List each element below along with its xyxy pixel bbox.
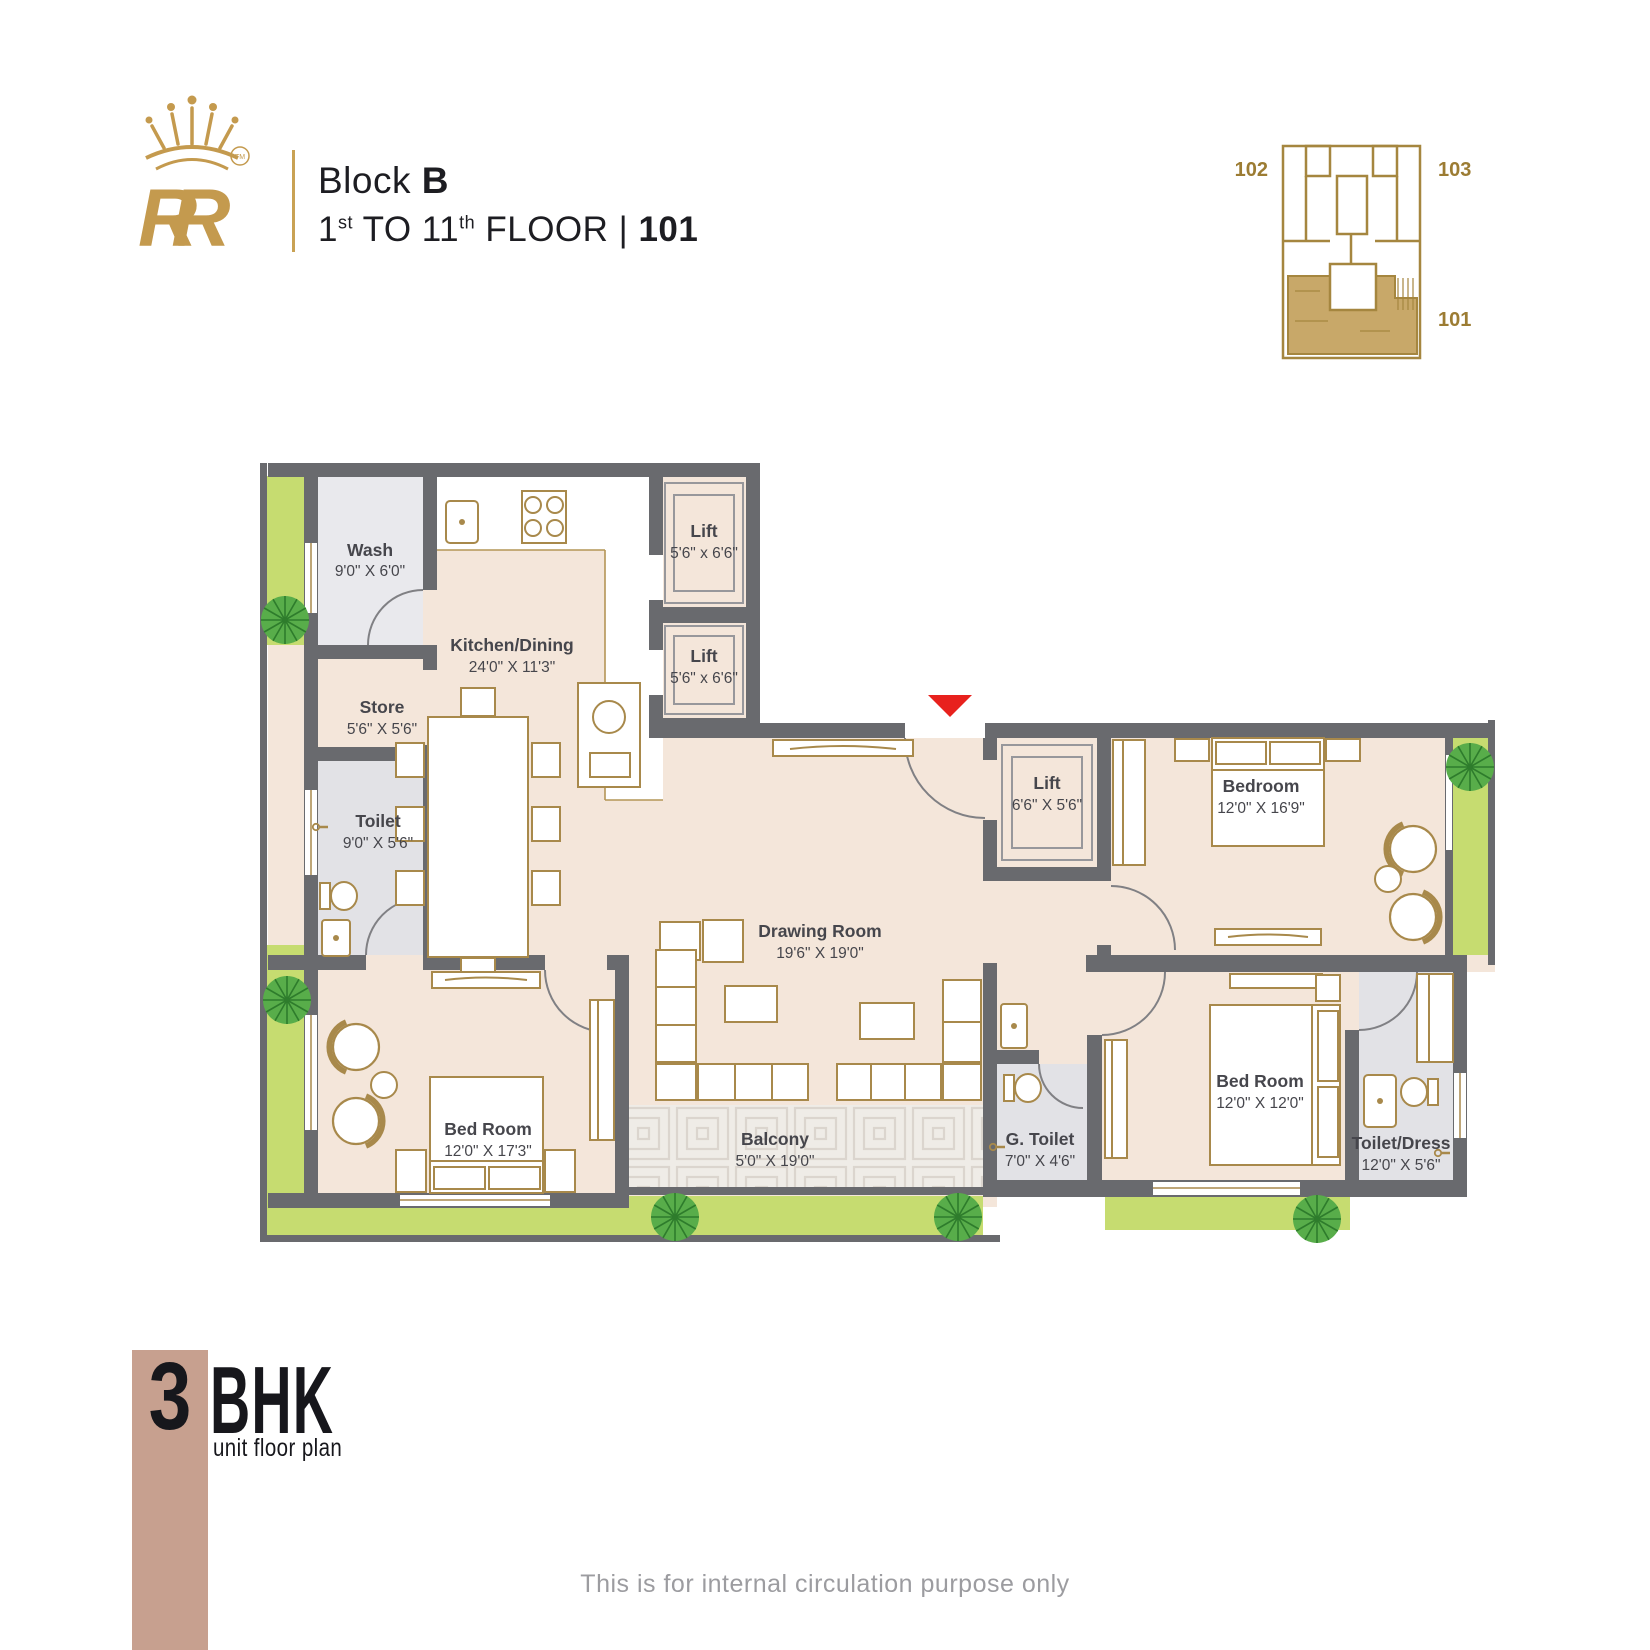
dining-table-icon (428, 717, 528, 957)
svg-text:Bed Room: Bed Room (444, 1119, 532, 1139)
wardrobe-icon (1417, 974, 1453, 1062)
tree-icon (1446, 743, 1494, 791)
footer-sub-label: unit floor plan (213, 1434, 342, 1463)
svg-text:Drawing Room: Drawing Room (758, 921, 881, 941)
wardrobe-icon (1113, 740, 1145, 865)
svg-text:Lift: Lift (690, 646, 717, 666)
svg-text:G. Toilet: G. Toilet (1006, 1129, 1075, 1149)
svg-text:Store: Store (360, 697, 405, 717)
floor-plan-page: { "header": { "logo_text": "RR", "logo_t… (0, 0, 1650, 1650)
svg-text:Bedroom: Bedroom (1223, 776, 1300, 796)
coffee-table-icon (860, 1003, 914, 1039)
floor-plan-drawing: Wash9'0" X 6'0" Kitchen/Dining24'0" X 11… (260, 455, 1500, 1255)
svg-text:12'0" X 5'6": 12'0" X 5'6" (1362, 1157, 1441, 1174)
coffee-table-icon (725, 986, 777, 1022)
svg-text:5'0" X 19'0": 5'0" X 19'0" (736, 1153, 815, 1170)
page-title: Block B 1st TO 11th FLOOR | 101 (318, 160, 698, 250)
key-plan-label-101: 101 (1438, 309, 1471, 331)
toilet-icon (320, 883, 330, 909)
svg-text:7'0" X 4'6": 7'0" X 4'6" (1005, 1153, 1075, 1170)
wash-floor (318, 477, 423, 645)
tree-icon (263, 976, 311, 1024)
sofa-icon (656, 950, 696, 1062)
svg-text:12'0" X 17'3": 12'0" X 17'3" (444, 1143, 532, 1160)
svg-text:Toilet: Toilet (355, 811, 401, 831)
svg-text:Wash: Wash (347, 540, 393, 560)
wardrobe-icon (1105, 1040, 1127, 1158)
footer-bhk-number: 3 (140, 1342, 201, 1452)
header-divider (292, 150, 295, 252)
disclaimer-text: This is for internal circulation purpose… (0, 1570, 1650, 1599)
svg-text:Balcony: Balcony (741, 1129, 809, 1149)
svg-text:24'0" X 11'3": 24'0" X 11'3" (469, 659, 555, 676)
wardrobe-icon (590, 1000, 614, 1140)
svg-text:19'6" X 19'0": 19'6" X 19'0" (776, 945, 864, 962)
floor-plan: Wash9'0" X 6'0" Kitchen/Dining24'0" X 11… (260, 455, 1500, 1255)
svg-text:6'6" X 5'6": 6'6" X 5'6" (1012, 797, 1082, 814)
svg-text:12'0" X 12'0": 12'0" X 12'0" (1216, 1095, 1304, 1112)
svg-text:5'6" X 5'6": 5'6" X 5'6" (347, 721, 417, 738)
key-plan-drawing: 102 103 101 (1210, 126, 1510, 376)
tree-icon (651, 1193, 699, 1241)
logo-letters: RR (138, 173, 230, 264)
toilet-icon (1428, 1079, 1438, 1105)
svg-text:Lift: Lift (690, 521, 717, 541)
sofa-icon (837, 1064, 941, 1100)
svg-text:12'0" X 16'9": 12'0" X 16'9" (1217, 800, 1305, 817)
key-plan-label-103: 103 (1438, 159, 1471, 181)
sofa-icon (698, 1064, 808, 1100)
svg-text:9'0" X 6'0": 9'0" X 6'0" (335, 563, 405, 580)
rr-crown-logo: RR TM (132, 86, 257, 266)
svg-text:Lift: Lift (1033, 773, 1060, 793)
tree-icon (1293, 1195, 1341, 1243)
key-plan: 102 103 101 (1210, 126, 1510, 376)
svg-text:9'0" X 5'6": 9'0" X 5'6" (343, 835, 413, 852)
logo-tm: TM (235, 154, 245, 161)
key-plan-label-102: 102 (1235, 159, 1268, 181)
entrance-marker-icon (928, 695, 972, 717)
svg-text:Toilet/Dress: Toilet/Dress (1352, 1133, 1451, 1153)
svg-text:Bed Room: Bed Room (1216, 1071, 1304, 1091)
floor-title: 1st TO 11th FLOOR | 101 (318, 210, 698, 250)
svg-text:5'6" x 6'6": 5'6" x 6'6" (670, 545, 738, 562)
tree-icon (934, 1193, 982, 1241)
block-title: Block B (318, 160, 698, 202)
toilet-icon (1004, 1075, 1014, 1101)
svg-text:5'6" x 6'6": 5'6" x 6'6" (670, 670, 738, 687)
rr-crown-logo-icon: RR TM (132, 86, 257, 266)
svg-text:Kitchen/Dining: Kitchen/Dining (450, 635, 573, 655)
tree-icon (261, 596, 309, 644)
